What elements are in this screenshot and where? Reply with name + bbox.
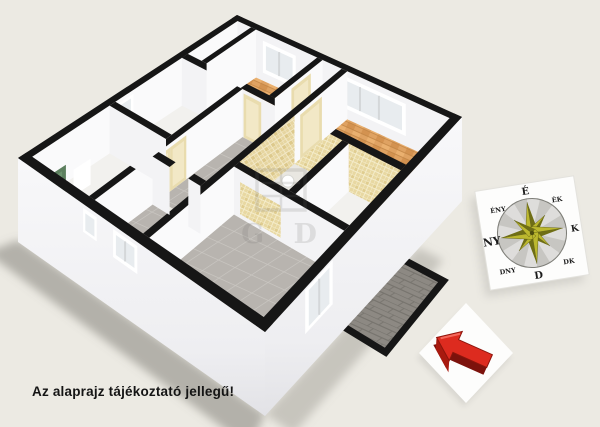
floorplan-scene: G D É ÉK K DK D DNY NY ÉNY: [0, 0, 600, 427]
caption-disclaimer: Az alaprajz tájékoztató jellegű!: [32, 384, 234, 399]
hallway-door-panel: [246, 99, 258, 142]
watermark-text: G D: [241, 219, 327, 250]
compass-card: É ÉK K DK D DNY NY ÉNY: [470, 176, 589, 297]
north-arrow-card: [417, 303, 513, 407]
floorplan-page: G D É ÉK K DK D DNY NY ÉNY: [0, 0, 600, 427]
wall-w10b-face: [188, 179, 200, 234]
compass-label-ne: ÉK: [551, 194, 563, 205]
floorplan-3d: [0, 15, 462, 427]
toilet: [282, 175, 294, 187]
